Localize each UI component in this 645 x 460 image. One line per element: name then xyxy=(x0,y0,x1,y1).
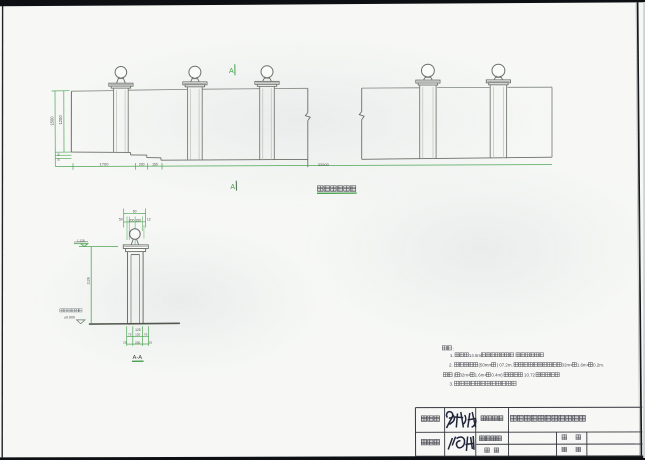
svg-text:A: A xyxy=(229,68,234,75)
svg-text:200: 200 xyxy=(129,218,135,222)
svg-text:150: 150 xyxy=(152,162,158,166)
svg-text:75: 75 xyxy=(144,333,148,337)
svg-text:125: 125 xyxy=(135,328,141,332)
svg-text:75: 75 xyxy=(128,333,132,337)
svg-text:25: 25 xyxy=(123,340,127,344)
svg-text:1.6m×: 1.6m× xyxy=(475,373,488,378)
svg-text:1700: 1700 xyxy=(100,162,110,167)
svg-text:250: 250 xyxy=(135,340,140,344)
svg-text:125: 125 xyxy=(135,333,140,337)
svg-text:150: 150 xyxy=(135,218,141,222)
svg-text:A-A: A-A xyxy=(132,355,142,361)
svg-text:10.72: 10.72 xyxy=(524,373,536,378)
svg-text:60: 60 xyxy=(133,210,137,214)
svg-text:32m×: 32m× xyxy=(562,363,574,368)
svg-text:(50mm: (50mm xyxy=(478,363,492,368)
svg-text:±0.000: ±0.000 xyxy=(64,316,75,320)
svg-text:1.6m×: 1.6m× xyxy=(577,363,590,368)
svg-text:2.: 2. xyxy=(449,363,453,368)
svg-text:32m×: 32m× xyxy=(459,373,471,378)
svg-text:0.2m.: 0.2m. xyxy=(593,363,604,368)
svg-text:50: 50 xyxy=(119,218,123,222)
svg-text:200: 200 xyxy=(139,162,145,166)
svg-text:14.5m: 14.5m xyxy=(469,353,482,358)
svg-text:0.4m): 0.4m) xyxy=(491,373,503,378)
svg-text:1.: 1. xyxy=(450,353,454,358)
svg-text:A: A xyxy=(230,184,235,191)
svg-text:1200: 1200 xyxy=(58,115,63,125)
svg-text:32000: 32000 xyxy=(318,162,330,167)
svg-text:3.: 3. xyxy=(449,381,453,386)
svg-text::: : xyxy=(453,347,454,352)
svg-text:07.2m.: 07.2m. xyxy=(499,363,512,368)
svg-text:1128: 1128 xyxy=(87,277,91,284)
svg-text:25: 25 xyxy=(149,340,153,344)
svg-text:1500: 1500 xyxy=(50,116,55,126)
svg-text:12: 12 xyxy=(147,218,151,222)
